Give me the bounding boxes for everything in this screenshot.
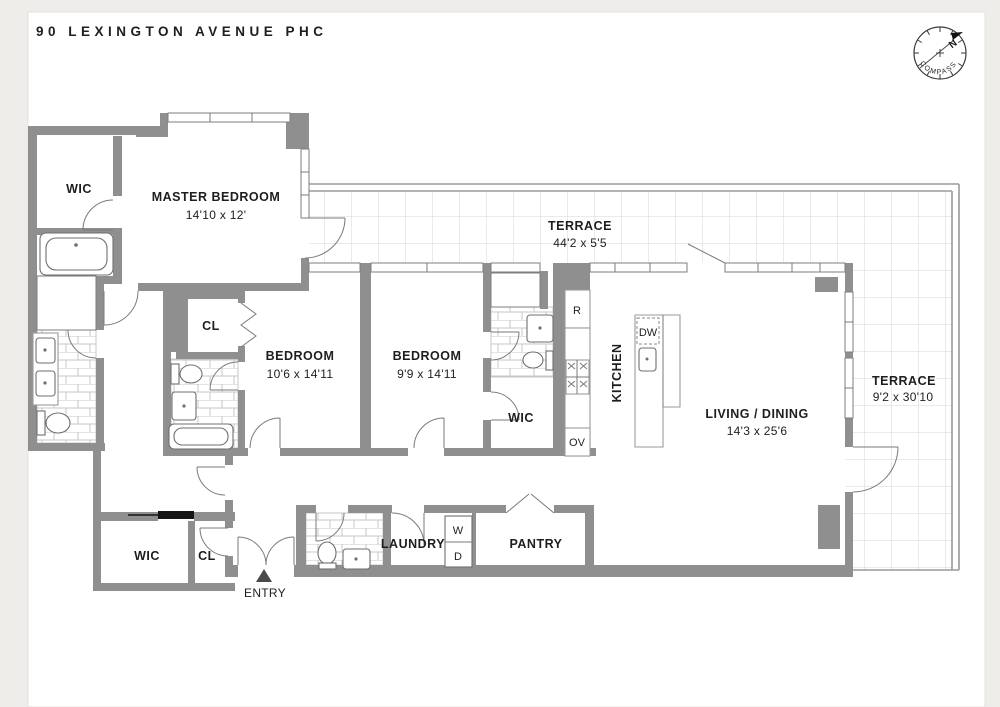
bedroom2-dims: 9'9 x 14'11: [397, 367, 457, 381]
bath3-sink: [527, 315, 553, 342]
entry-label: ENTRY: [244, 586, 286, 600]
wic-master-label: WIC: [66, 182, 92, 196]
floor-plan-svg: 90 LEXINGTON AVENUE PHC: [0, 0, 1000, 707]
master-bedroom-label: MASTER BEDROOM: [152, 190, 281, 204]
pocket-door: [158, 511, 194, 519]
washer-label: W: [453, 525, 464, 537]
dishwasher-label: DW: [639, 327, 658, 339]
living-dining-dims: 14'3 x 25'6: [727, 424, 788, 438]
master-bathtub: [40, 233, 113, 275]
compass-icon: N COMPASS: [914, 27, 966, 79]
bath3-toilet: [523, 351, 553, 370]
kitchen-label: KITCHEN: [610, 343, 624, 402]
laundry-label: LAUNDRY: [381, 537, 445, 551]
powder-sink: [343, 549, 370, 569]
refrigerator-label: R: [573, 305, 581, 317]
master-bedroom-dims: 14'10 x 12': [186, 208, 247, 222]
bath2-tub: [169, 424, 233, 449]
bedroom1-dims: 10'6 x 14'11: [267, 367, 334, 381]
closet-bed1-label: CL: [202, 319, 220, 333]
terrace-right-label: TERRACE: [872, 374, 936, 388]
wic-bed2-label: WIC: [508, 411, 534, 425]
bedroom2-label: BEDROOM: [393, 349, 462, 363]
living-dining-label: LIVING / DINING: [705, 407, 808, 421]
powder-toilet: [318, 542, 336, 569]
terrace-top-dims: 44'2 x 5'5: [553, 236, 607, 250]
cooktop: [566, 360, 589, 394]
oven-label: OV: [569, 437, 586, 449]
bedroom1-label: BEDROOM: [266, 349, 335, 363]
terrace-top-label: TERRACE: [548, 219, 612, 233]
wic-entry-label: WIC: [134, 549, 160, 563]
master-vanity: [33, 333, 58, 405]
pantry-label: PANTRY: [510, 537, 563, 551]
terrace-right-dims: 9'2 x 30'10: [873, 390, 934, 404]
closet-entry-label: CL: [198, 549, 216, 563]
dryer-label: D: [454, 551, 462, 563]
bath2-toilet: [171, 364, 202, 384]
plan-title: 90 LEXINGTON AVENUE PHC: [36, 24, 328, 39]
floorplan-page: 90 LEXINGTON AVENUE PHC: [0, 0, 1000, 707]
master-toilet: [37, 411, 70, 435]
bath2-sink: [172, 392, 196, 420]
